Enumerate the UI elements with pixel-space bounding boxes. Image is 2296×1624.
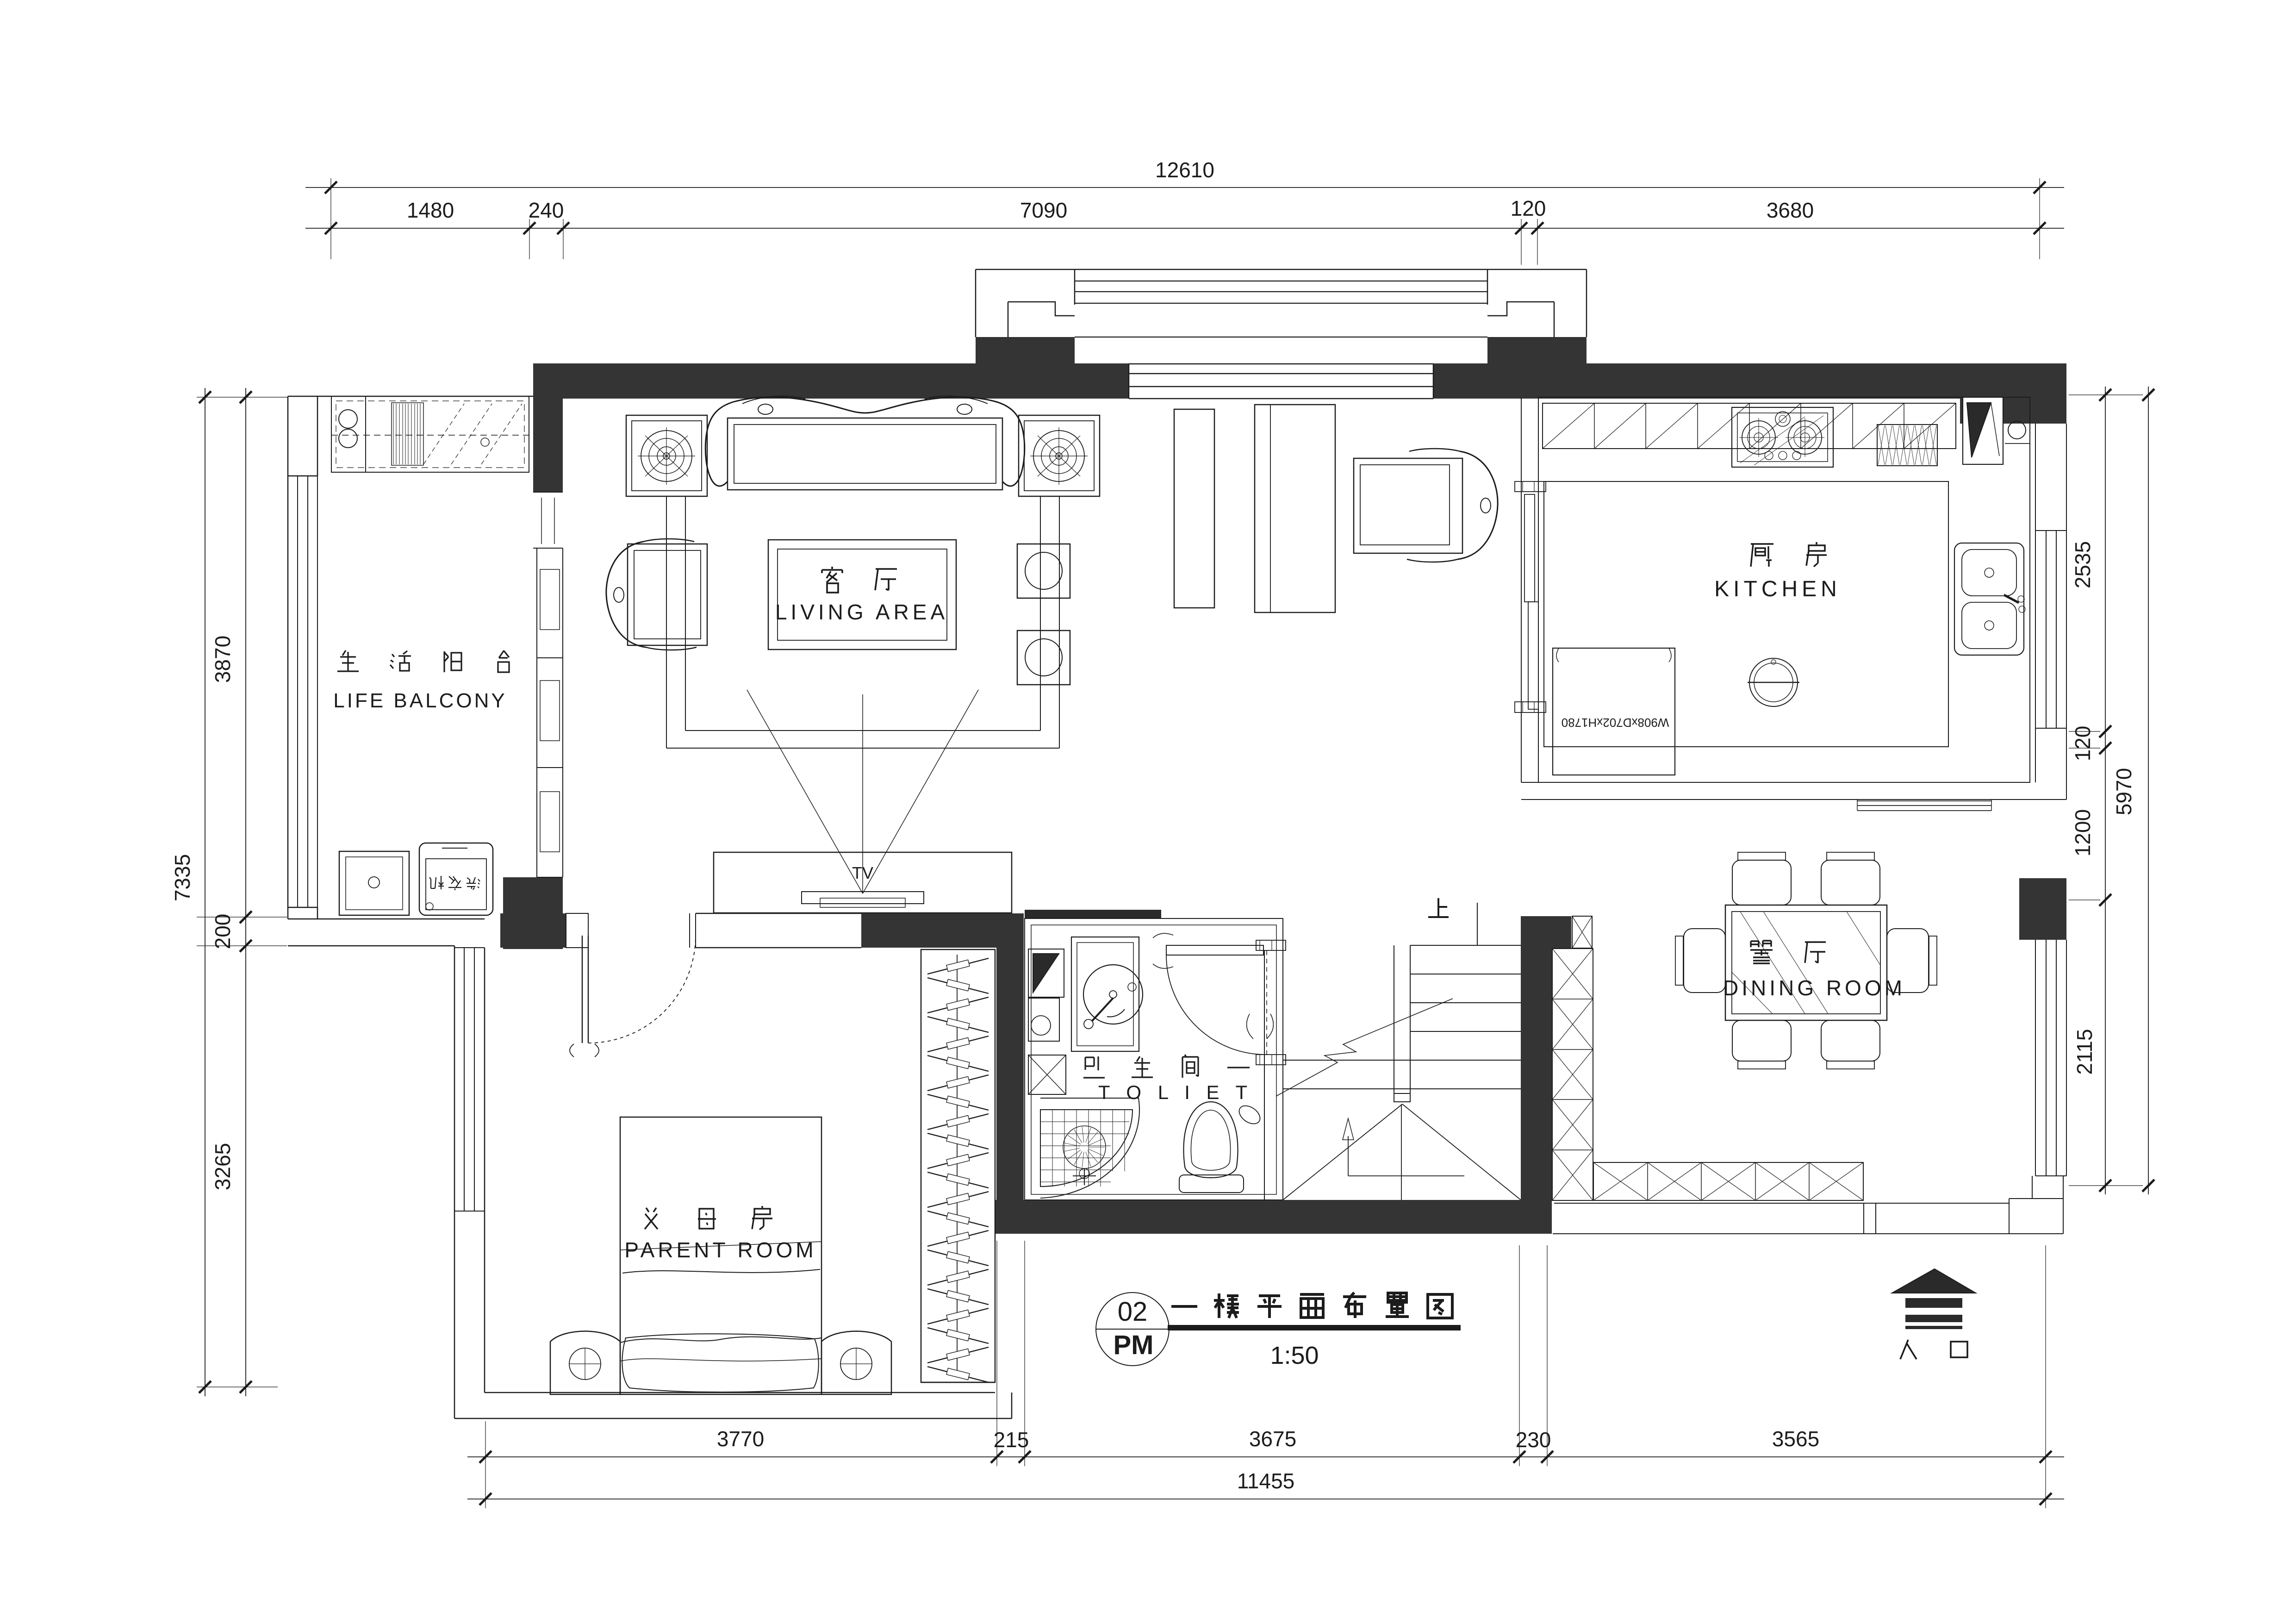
svg-text:12610: 12610 xyxy=(1155,158,1214,182)
svg-text:200: 200 xyxy=(211,914,235,949)
svg-text:PARENT ROOM: PARENT ROOM xyxy=(624,1238,816,1262)
svg-text:DINING ROOM: DINING ROOM xyxy=(1723,976,1905,1000)
svg-text:KITCHEN: KITCHEN xyxy=(1714,577,1841,601)
svg-text:1480: 1480 xyxy=(407,198,454,222)
svg-text:3870: 3870 xyxy=(211,636,235,683)
svg-text:11455: 11455 xyxy=(1237,1469,1295,1493)
svg-text:120: 120 xyxy=(1511,196,1546,220)
svg-text:PM: PM xyxy=(1114,1330,1154,1360)
svg-text:1:50: 1:50 xyxy=(1270,1342,1319,1369)
svg-text:240: 240 xyxy=(529,198,564,222)
svg-text:3565: 3565 xyxy=(1772,1427,1819,1451)
svg-text:120: 120 xyxy=(2071,726,2095,762)
svg-text:5970: 5970 xyxy=(2112,768,2136,815)
svg-text:3680: 3680 xyxy=(1767,198,1814,222)
svg-text:T O L I E T: T O L I E T xyxy=(1098,1081,1253,1103)
svg-text:2535: 2535 xyxy=(2071,541,2095,588)
svg-text:3770: 3770 xyxy=(717,1427,764,1451)
svg-text:W908xD702xH1780: W908xD702xH1780 xyxy=(1562,716,1669,730)
svg-text:230: 230 xyxy=(1516,1428,1551,1452)
svg-text:1200: 1200 xyxy=(2071,809,2095,856)
svg-text:3675: 3675 xyxy=(1249,1427,1296,1451)
svg-text:LIVING AREA: LIVING AREA xyxy=(775,600,948,624)
svg-text:02: 02 xyxy=(1118,1297,1148,1327)
svg-text:7335: 7335 xyxy=(170,854,194,901)
svg-text:7090: 7090 xyxy=(1020,198,1067,222)
svg-text:2115: 2115 xyxy=(2072,1029,2097,1075)
svg-text:215: 215 xyxy=(994,1428,1029,1452)
svg-text:LIFE BALCONY: LIFE BALCONY xyxy=(333,689,507,712)
svg-text:3265: 3265 xyxy=(211,1143,235,1190)
